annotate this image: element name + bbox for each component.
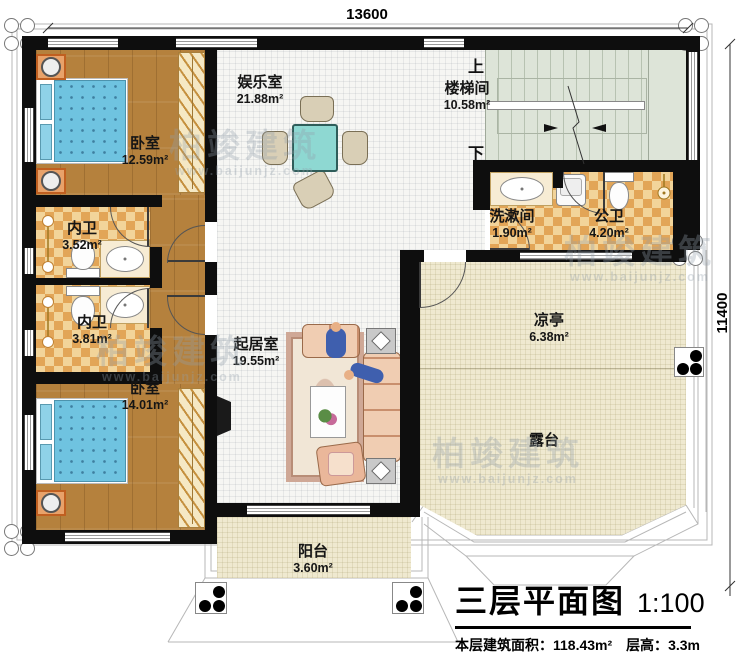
annotation-lines bbox=[0, 0, 750, 658]
floor-plan: 卧室 12.59m² 娱乐室 21.88m² 楼梯间 10.58m² 内卫 3.… bbox=[0, 0, 750, 658]
